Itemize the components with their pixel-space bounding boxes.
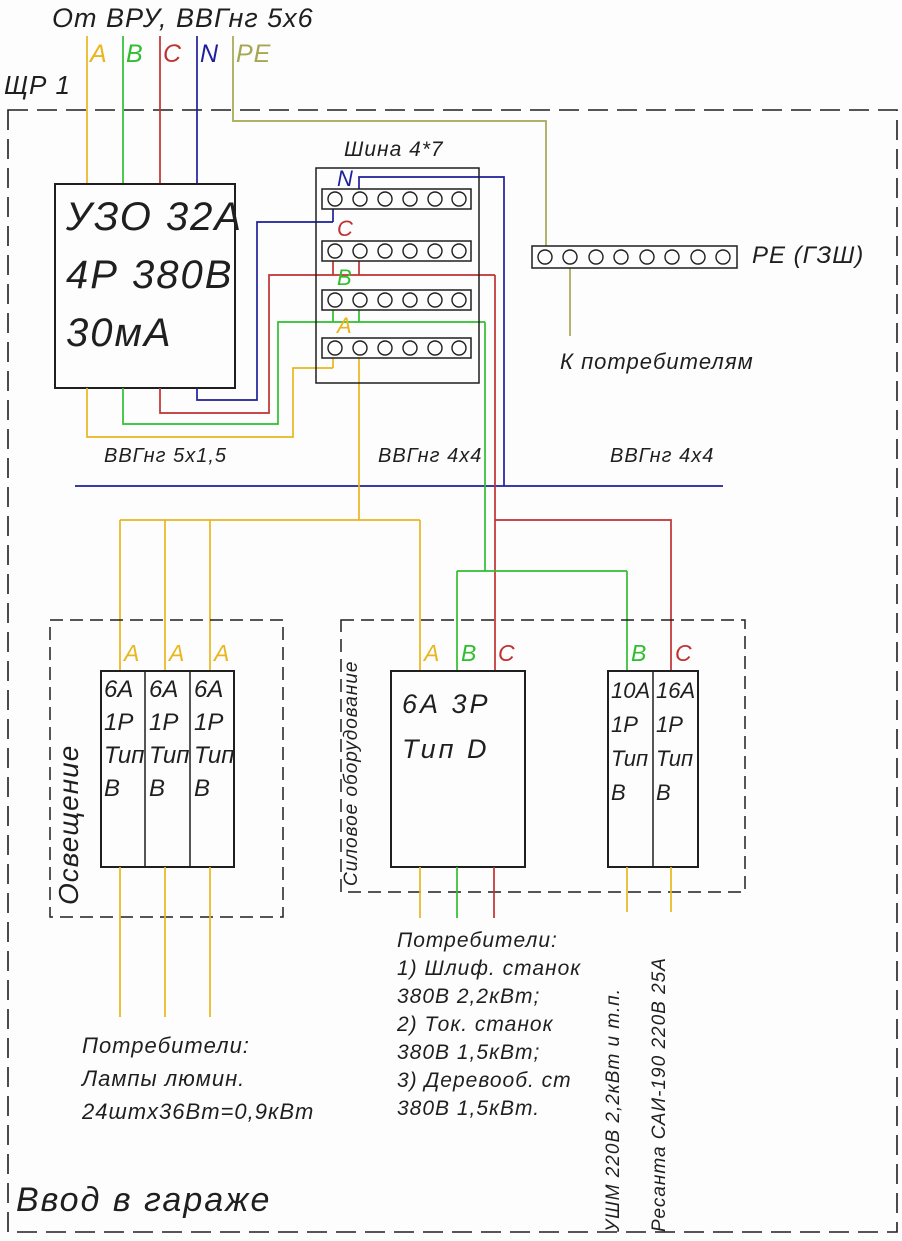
breaker-rating: 6А	[194, 673, 234, 706]
busbar-label-a: A	[337, 314, 353, 337]
rcd-to-bus-neutral	[197, 222, 333, 400]
breaker-curve: В	[104, 772, 144, 805]
rcd-line-2: 4Р 380В	[66, 254, 233, 296]
lighting-phase-label-3: A	[214, 641, 230, 665]
schematic-canvas: От ВРУ, ВВГнг 5х6 ЩР 1 A B C N PE УЗО 32…	[0, 0, 902, 1241]
incoming-label-phase-c: C	[163, 41, 182, 67]
power-group-name: Силовое оборудование	[342, 628, 376, 886]
breaker-type-word: Тип	[611, 742, 651, 776]
incoming-label-neutral: N	[200, 41, 219, 67]
power-consumers-line-7: 380В 1,5кВт.	[397, 1098, 540, 1120]
incoming-label-phase-b: B	[126, 41, 144, 67]
lighting-consumers-line-3: 24штх36Вт=0,9кВт	[82, 1100, 314, 1123]
breaker-3p-line-1: 6А 3Р	[402, 690, 491, 718]
busbar-strip-n	[322, 189, 471, 209]
power-consumers-line-2: 1) Шлиф. станок	[397, 958, 581, 980]
breaker-curve: В	[194, 772, 234, 805]
breaker-poles: 1Р	[656, 708, 696, 742]
neutral-down-feed	[359, 177, 504, 486]
load-note-resanta: Ресанта САИ-190 220В 25А	[650, 916, 678, 1232]
cable-label-power-3p: ВВГнг 4х4	[378, 446, 482, 467]
supply-title: От ВРУ, ВВГнг 5х6	[52, 4, 314, 32]
power-consumers-line-3: 380В 2,2кВт;	[397, 986, 540, 1008]
panel-name: ЩР 1	[4, 72, 71, 99]
busbar-strip-a	[322, 338, 471, 358]
lighting-breaker-2: 6А 1Р Тип В	[149, 673, 189, 805]
breaker-16a: 16А 1Р Тип В	[656, 674, 696, 810]
lighting-phase-label-2: A	[169, 641, 185, 665]
cable-label-lighting: ВВГнг 5х1,5	[104, 446, 227, 467]
pe-bus-note: К потребителям	[560, 350, 754, 373]
power-consumers-line-4: 2) Ток. станок	[397, 1014, 554, 1036]
busbar-label-b: B	[337, 266, 353, 289]
lighting-group-name: Освещение	[54, 703, 100, 905]
breaker-type-word: Тип	[104, 739, 144, 772]
power-consumers-line-6: 3) Деревооб. ст	[397, 1070, 572, 1092]
busbar-label-c: C	[337, 217, 354, 240]
breaker-type-word: Тип	[149, 739, 189, 772]
breaker-curve: В	[149, 772, 189, 805]
cable-label-power-1p: ВВГнг 4х4	[610, 446, 714, 467]
lighting-phase-label-1: A	[124, 641, 140, 665]
breaker-3p-line-2: Тип D	[402, 735, 489, 763]
power-3p-phase-c-label: C	[498, 641, 516, 665]
breaker-rating: 10А	[611, 674, 651, 708]
lighting-consumers-line-2: Лампы люмин.	[82, 1067, 245, 1090]
lighting-breaker-3: 6А 1Р Тип В	[194, 673, 234, 805]
breaker-curve: В	[611, 776, 651, 810]
pe-busbar-holes	[538, 250, 730, 264]
breaker-type-word: Тип	[656, 742, 696, 776]
breaker-10a: 10А 1Р Тип В	[611, 674, 651, 810]
breaker-16a-phase-label: C	[675, 641, 693, 665]
pe-bus-label: PE (ГЗШ)	[752, 243, 864, 268]
busbar-strip-c	[322, 241, 471, 261]
breaker-rating: 16А	[656, 674, 696, 708]
power-consumers-line-5: 380В 1,5кВт;	[397, 1042, 540, 1064]
busbar-title: Шина 4*7	[344, 139, 444, 161]
breaker-type-word: Тип	[194, 739, 234, 772]
busbar-label-n: N	[337, 167, 354, 190]
breaker-poles: 1Р	[194, 706, 234, 739]
rcd-line-1: УЗО 32А	[66, 196, 243, 238]
lighting-breaker-1: 6А 1Р Тип В	[104, 673, 144, 805]
power-3p-phase-b-label: B	[461, 641, 477, 665]
load-note-ushm: УШМ 220В 2,2кВт и т.п.	[604, 916, 632, 1232]
power-3p-phase-a-label: A	[424, 641, 440, 665]
rcd-line-3: 30мА	[66, 312, 173, 354]
breaker-rating: 6А	[149, 673, 189, 706]
breaker-poles: 1Р	[149, 706, 189, 739]
breaker-poles: 1Р	[104, 706, 144, 739]
busbar-strip-b	[322, 290, 471, 310]
rcd-to-bus-phase-a	[87, 368, 333, 437]
footer-caption: Ввод в гараже	[16, 1183, 271, 1219]
breaker-poles: 1Р	[611, 708, 651, 742]
breaker-curve: В	[656, 776, 696, 810]
incoming-label-phase-a: A	[90, 41, 108, 67]
power-consumers-line-1: Потребители:	[397, 930, 558, 952]
incoming-label-pe: PE	[236, 41, 271, 67]
breaker-rating: 6А	[104, 673, 144, 706]
breaker-10a-phase-label: B	[631, 641, 647, 665]
lighting-consumers-line-1: Потребители:	[82, 1034, 250, 1057]
